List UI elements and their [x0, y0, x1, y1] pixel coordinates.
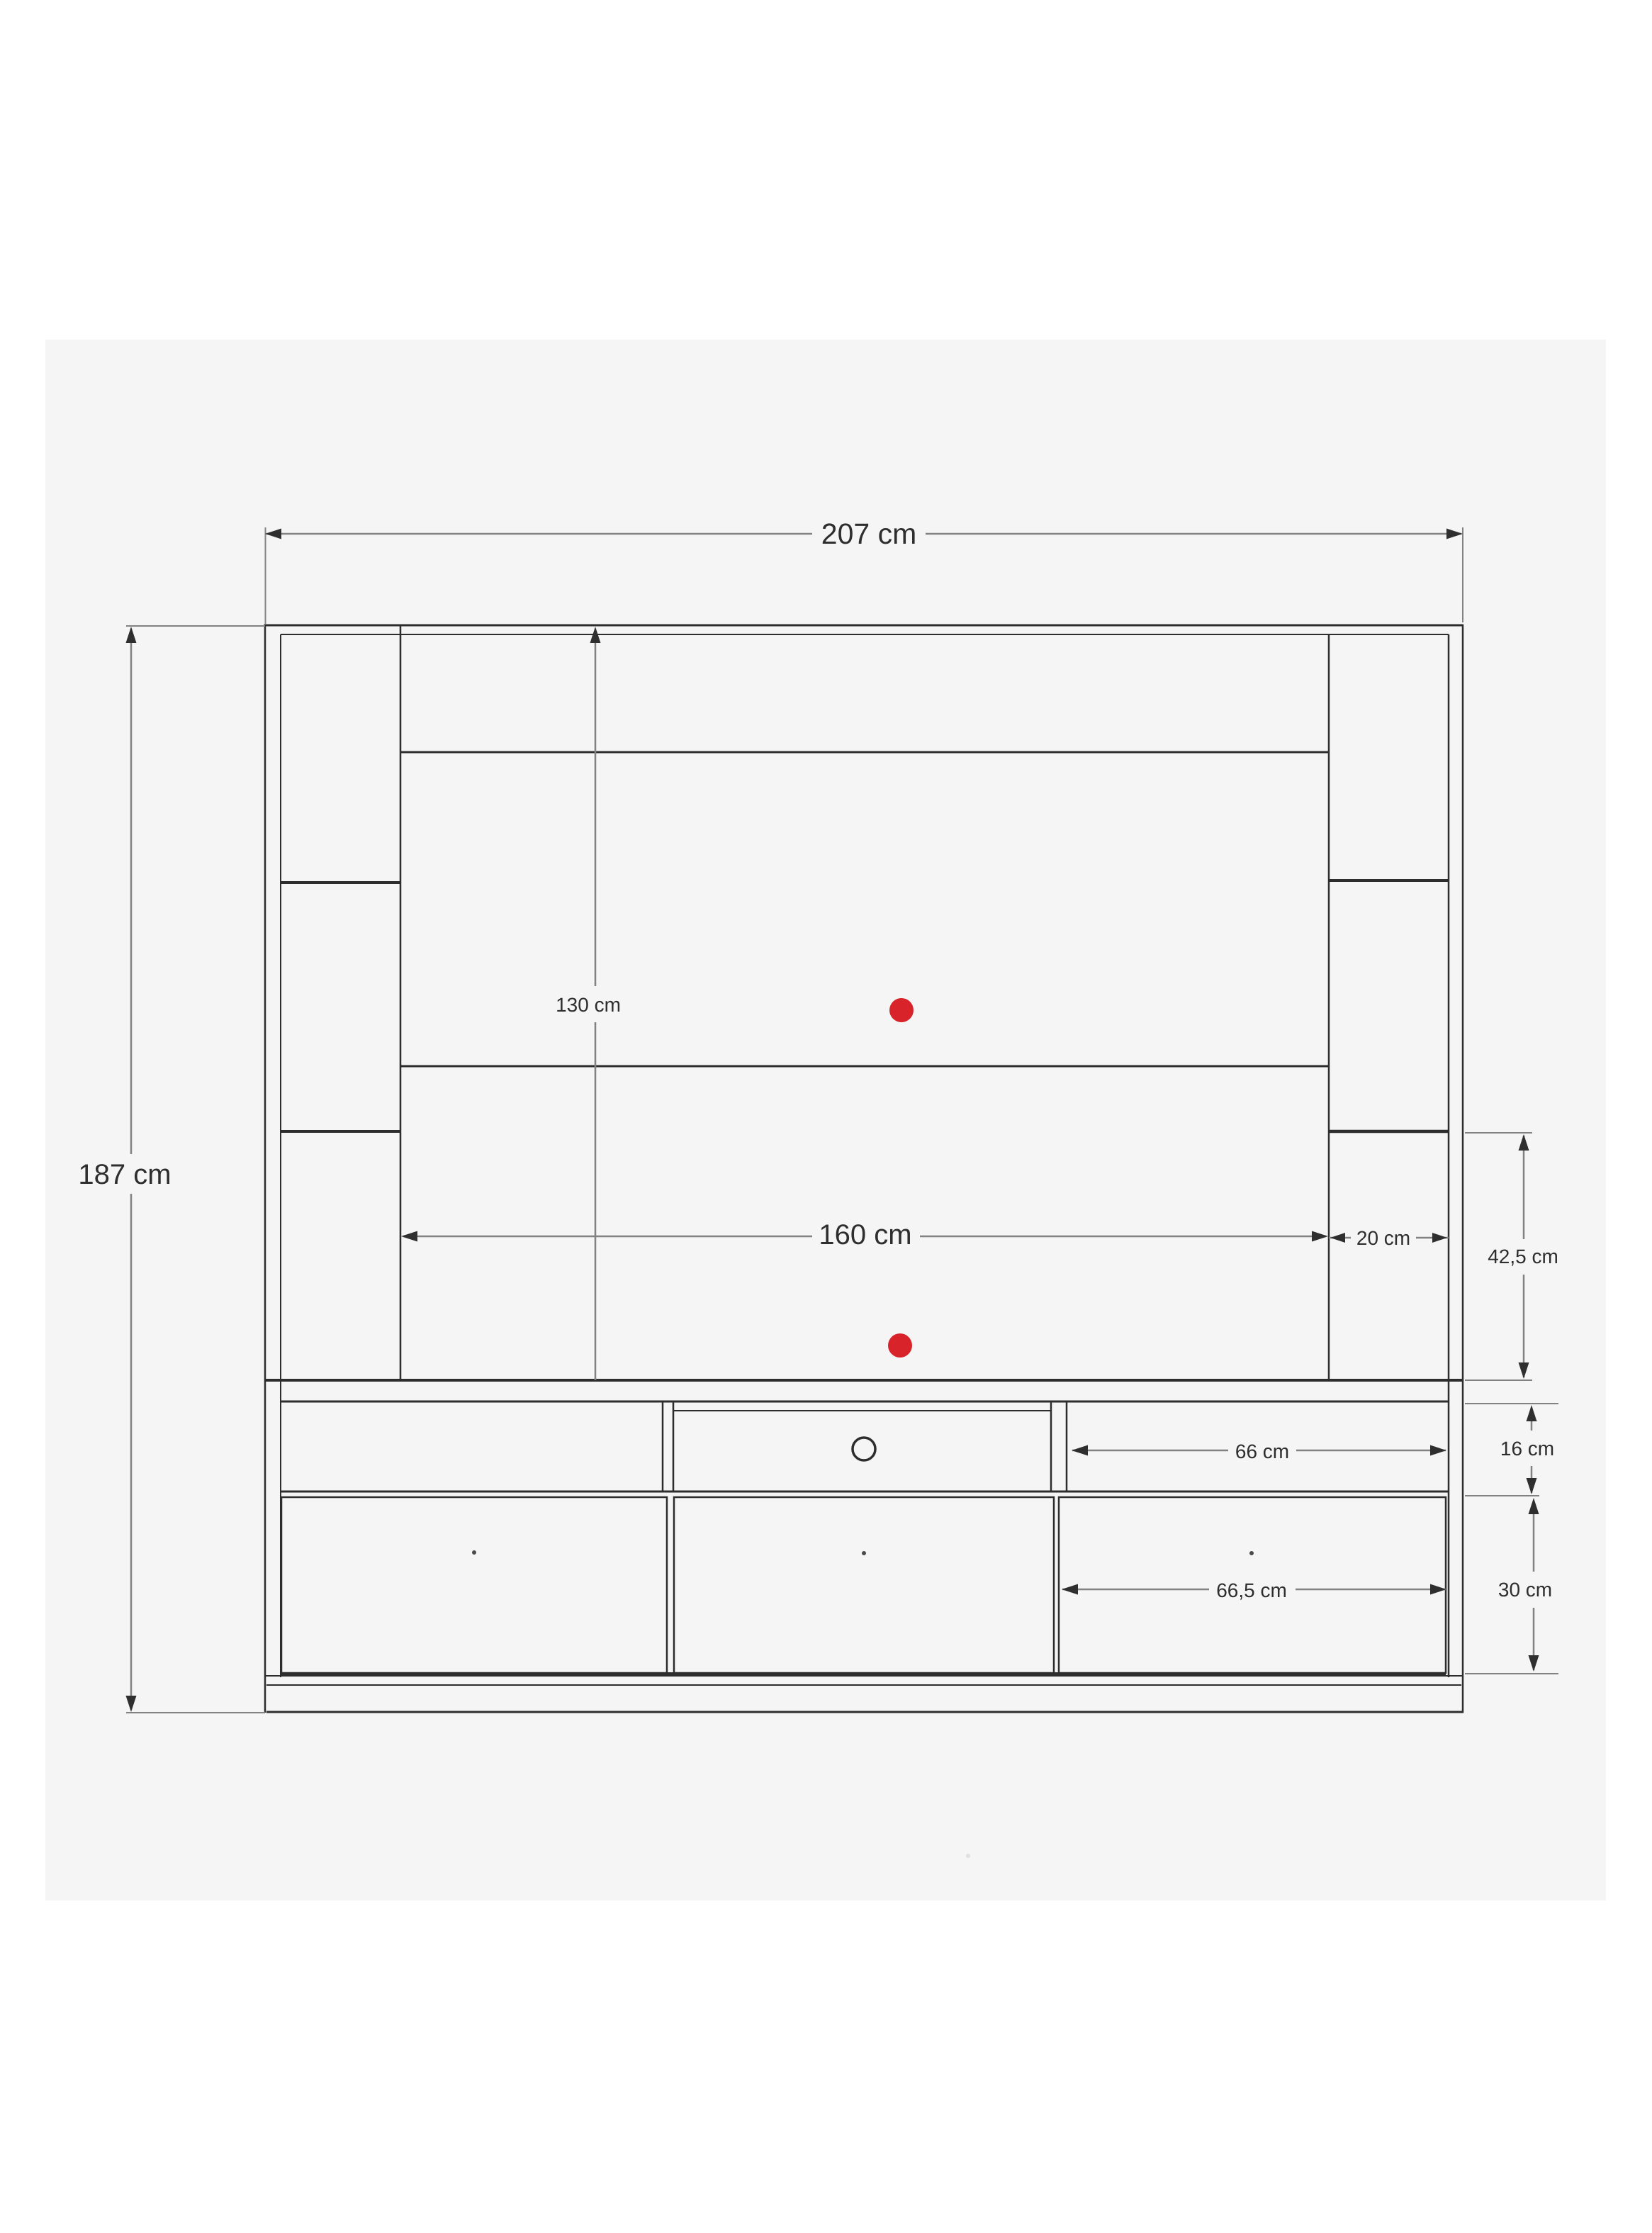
svg-text:16 cm: 16 cm [1500, 1438, 1554, 1460]
svg-text:30 cm: 30 cm [1498, 1579, 1552, 1601]
svg-text:66 cm: 66 cm [1235, 1440, 1289, 1462]
svg-text:187 cm: 187 cm [78, 1159, 171, 1190]
svg-text:66,5 cm: 66,5 cm [1216, 1579, 1287, 1601]
svg-text:160 cm: 160 cm [819, 1219, 911, 1250]
svg-text:20 cm: 20 cm [1356, 1227, 1410, 1249]
svg-text:130 cm: 130 cm [556, 994, 621, 1016]
svg-text:207 cm: 207 cm [821, 517, 916, 550]
svg-text:42,5 cm: 42,5 cm [1488, 1246, 1558, 1267]
